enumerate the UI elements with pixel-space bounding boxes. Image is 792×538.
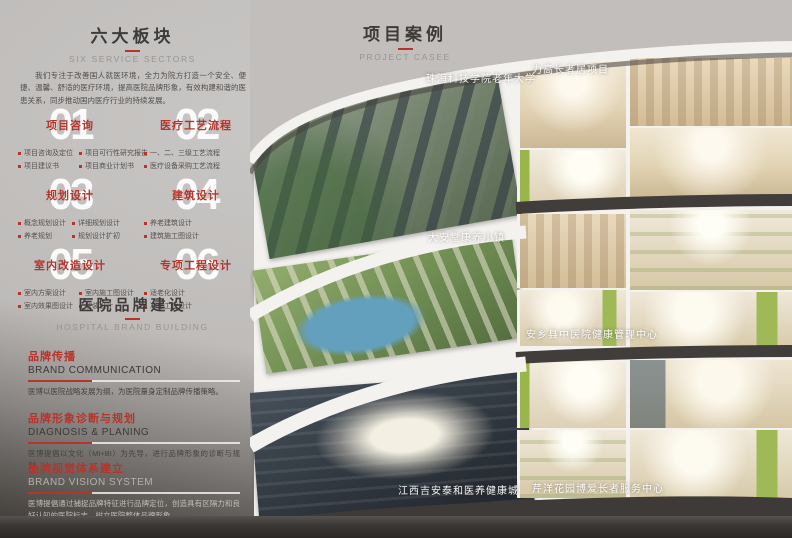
interior-photo-dining-hall: [630, 210, 792, 290]
brand-section-subtitle: DIAGNOSIS & PLANING: [28, 427, 240, 438]
render-night-medical-city: [250, 371, 535, 522]
hospital-brand-title: 医院品牌建设: [0, 294, 265, 315]
bullet-icon: [72, 235, 75, 238]
sector-item-list: 养老建筑设计 建筑施工图设计: [144, 218, 254, 241]
project-caption-ligao-elder: 力高长者居项目: [532, 61, 609, 76]
brochure-page: 六大板块 SIX SERVICE SECTORS 我们专注于改善国人就医环境，全…: [0, 0, 792, 538]
interior-photo-hall: [520, 150, 626, 204]
bottom-dark-band: [0, 516, 792, 538]
project-caption-jian-health-city: 江西吉安泰和医养健康城: [398, 482, 519, 497]
sector-item: 概念规划设计: [18, 218, 66, 228]
interior-photo-corridor: [520, 362, 626, 428]
left-panel-six-sectors: 六大板块 SIX SERVICE SECTORS 我们专注于改善国人就医环境，全…: [0, 0, 265, 538]
project-cases-header: 项目案例 PROJECT CASEE: [290, 20, 520, 62]
interior-photo-lounge: [630, 128, 792, 198]
sector-item-list: 项目咨询及定位 项目可行性研究报告 项目建议书 项目商业计划书: [18, 148, 128, 171]
sector-item-label: 项目商业计划书: [85, 161, 134, 171]
sector-item-label: 养老规划: [24, 231, 52, 241]
section-divider: [28, 442, 240, 444]
sector-head: 06 专项工程设计: [138, 244, 254, 286]
divider-accent: [28, 380, 92, 382]
hospital-brand-header: 医院品牌建设 HOSPITAL BRAND BUILDING: [0, 294, 265, 332]
bullet-icon: [72, 222, 75, 225]
bullet-icon: [18, 165, 21, 168]
sector-head: 05 室内改造设计: [12, 244, 128, 286]
bullet-icon: [144, 165, 147, 168]
sector-head: 02 医疗工艺流程: [138, 104, 254, 146]
project-cases-subtitle: PROJECT CASEE: [290, 52, 520, 62]
sector-block-03: 03 规划设计 概念规划设计 详细规划设计 养老规划 规划设计扩初: [12, 174, 128, 241]
six-sectors-header: 六大板块 SIX SERVICE SECTORS: [0, 22, 265, 64]
sector-item-label: 概念规划设计: [24, 218, 66, 228]
divider-accent: [28, 442, 92, 444]
sector-head: 04 建筑设计: [138, 174, 254, 216]
bullet-icon: [79, 165, 82, 168]
six-sectors-subtitle: SIX SERVICE SECTORS: [0, 54, 265, 64]
sector-title: 室内改造设计: [34, 257, 106, 273]
sector-block-02: 02 医疗工艺流程 一、二、三级工艺流程 医疗设备采购工艺流程: [138, 104, 254, 171]
bullet-icon: [18, 222, 21, 225]
sector-item: 项目咨询及定位: [18, 148, 73, 158]
interior-photo-reception: [630, 58, 792, 126]
section-divider: [28, 380, 240, 382]
brand-section-subtitle: BRAND COMMUNICATION: [28, 365, 240, 376]
sector-head: 03 规划设计: [12, 174, 128, 216]
sector-title: 建筑设计: [172, 187, 220, 203]
interior-photo-living-room: [630, 360, 792, 428]
bullet-icon: [18, 152, 21, 155]
title-accent-underline: [125, 318, 140, 320]
project-caption-daantang-town: 大安堂康养小镇: [428, 229, 505, 244]
sector-item: 养老建筑设计: [144, 218, 199, 228]
sector-item-list: 一、二、三级工艺流程 医疗设备采购工艺流程: [144, 148, 254, 171]
brand-section-communication: 品牌传播 BRAND COMMUNICATION 医博以医院战略发展为纲，为医院…: [28, 348, 240, 398]
project-caption-anxiang-center: 安乡县中医院健康管理中心: [526, 326, 658, 341]
bullet-icon: [79, 152, 82, 155]
sector-title: 项目咨询: [46, 117, 94, 133]
brand-section-vision: 品牌视觉体系建立 BRAND VISION SYSTEM 医博提倡通过捕捉品牌特…: [28, 460, 240, 522]
sector-head: 01 项目咨询: [12, 104, 128, 146]
sector-item: 详细规划设计: [72, 218, 120, 228]
sector-item-list: 概念规划设计 详细规划设计 养老规划 规划设计扩初: [18, 218, 128, 241]
bullet-icon: [18, 235, 21, 238]
brand-section-title: 品牌视觉体系建立: [28, 460, 240, 476]
sector-item: 一、二、三级工艺流程: [144, 148, 220, 158]
sector-item-label: 详细规划设计: [78, 218, 120, 228]
project-cases-title: 项目案例: [290, 20, 520, 45]
sector-item-label: 养老建筑设计: [150, 218, 192, 228]
service-sectors-grid: 01 项目咨询 项目咨询及定位 项目可行性研究报告 项目建议书 项目商业计划书 …: [12, 104, 254, 311]
divider-accent: [28, 492, 92, 494]
title-accent-underline: [398, 48, 413, 50]
sector-block-04: 04 建筑设计 养老建筑设计 建筑施工图设计: [138, 174, 254, 241]
six-sectors-title: 六大板块: [0, 22, 265, 47]
hospital-brand-subtitle: HOSPITAL BRAND BUILDING: [0, 322, 265, 332]
brand-section-title: 品牌形象诊断与规划: [28, 410, 240, 426]
sector-block-01: 01 项目咨询 项目咨询及定位 项目可行性研究报告 项目建议书 项目商业计划书: [12, 104, 128, 171]
interior-photo-library: [520, 214, 626, 288]
sector-title: 规划设计: [46, 187, 94, 203]
bullet-icon: [144, 222, 147, 225]
sector-title: 专项工程设计: [160, 257, 232, 273]
bullet-icon: [144, 235, 147, 238]
right-panel-project-cases: 项目案例 PROJECT CASEE 珠海科技学院老年大学 力高长者居项目 大安…: [250, 0, 792, 538]
sector-title: 医疗工艺流程: [160, 117, 232, 133]
project-caption-zhuhai-university: 珠海科技学院老年大学: [426, 70, 536, 85]
sector-item-label: 项目咨询及定位: [24, 148, 73, 158]
brand-section-subtitle: BRAND VISION SYSTEM: [28, 477, 240, 488]
sector-item-label: 一、二、三级工艺流程: [150, 148, 220, 158]
bullet-icon: [144, 152, 147, 155]
project-caption-qinyang-garden: 芹洋花园博爱长者服务中心: [532, 480, 664, 495]
section-divider: [28, 492, 240, 494]
title-accent-underline: [125, 50, 140, 52]
brand-section-title: 品牌传播: [28, 348, 240, 364]
brand-section-body: 医博以医院战略发展为纲，为医院量身定制品牌传播策略。: [28, 386, 240, 398]
